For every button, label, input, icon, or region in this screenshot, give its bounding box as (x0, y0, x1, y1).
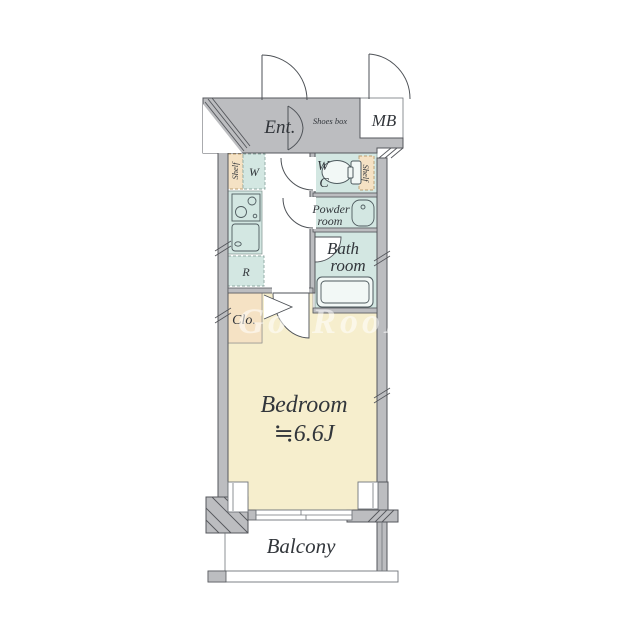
label-shoes-box: Shoes box (313, 116, 347, 126)
wc-powder-wall (313, 193, 377, 197)
balcony-sliding-window (256, 510, 352, 520)
label-shelf-right: Shelf (361, 165, 371, 184)
label-entrance: Ent. (263, 117, 295, 138)
label-bedroom-line1: Bedroom (260, 392, 347, 418)
label-wc-line1: W (317, 159, 330, 174)
wc-door (281, 158, 313, 190)
left-corner-window (228, 482, 248, 512)
label-washer: W (249, 165, 260, 179)
window-left-jamb (248, 510, 256, 520)
label-balcony: Balcony (267, 534, 336, 558)
right-corner-window (358, 482, 378, 509)
label-bedroom-line2: ≒6.6J (274, 421, 336, 447)
label-shelf-left: Shelf (230, 161, 240, 180)
label-bath-line2: room (330, 256, 365, 275)
bottom-right-wall (347, 510, 398, 522)
wc-door-opening (309, 157, 316, 191)
label-powder-line2: room (318, 214, 343, 228)
right-wall-corner (378, 482, 388, 510)
floorplan-drawing: Ent. Shoes box MB Shelf W W C Shelf Powd… (0, 0, 640, 640)
powder-bath-wall (313, 228, 377, 232)
floorplan-page: Ent. Shoes box MB Shelf W W C Shelf Powd… (0, 0, 640, 640)
label-wc-line2: C (319, 176, 329, 191)
powder-door (283, 198, 313, 228)
balcony-railing (208, 571, 398, 582)
entrance-door (262, 55, 307, 100)
label-fridge: R (241, 265, 250, 279)
balcony-railing-cap (208, 571, 226, 582)
kitchen-counter (228, 191, 262, 254)
meter-box-door (369, 54, 410, 99)
watermark: GooRooM (238, 301, 420, 341)
label-meter-box: MB (371, 111, 397, 130)
